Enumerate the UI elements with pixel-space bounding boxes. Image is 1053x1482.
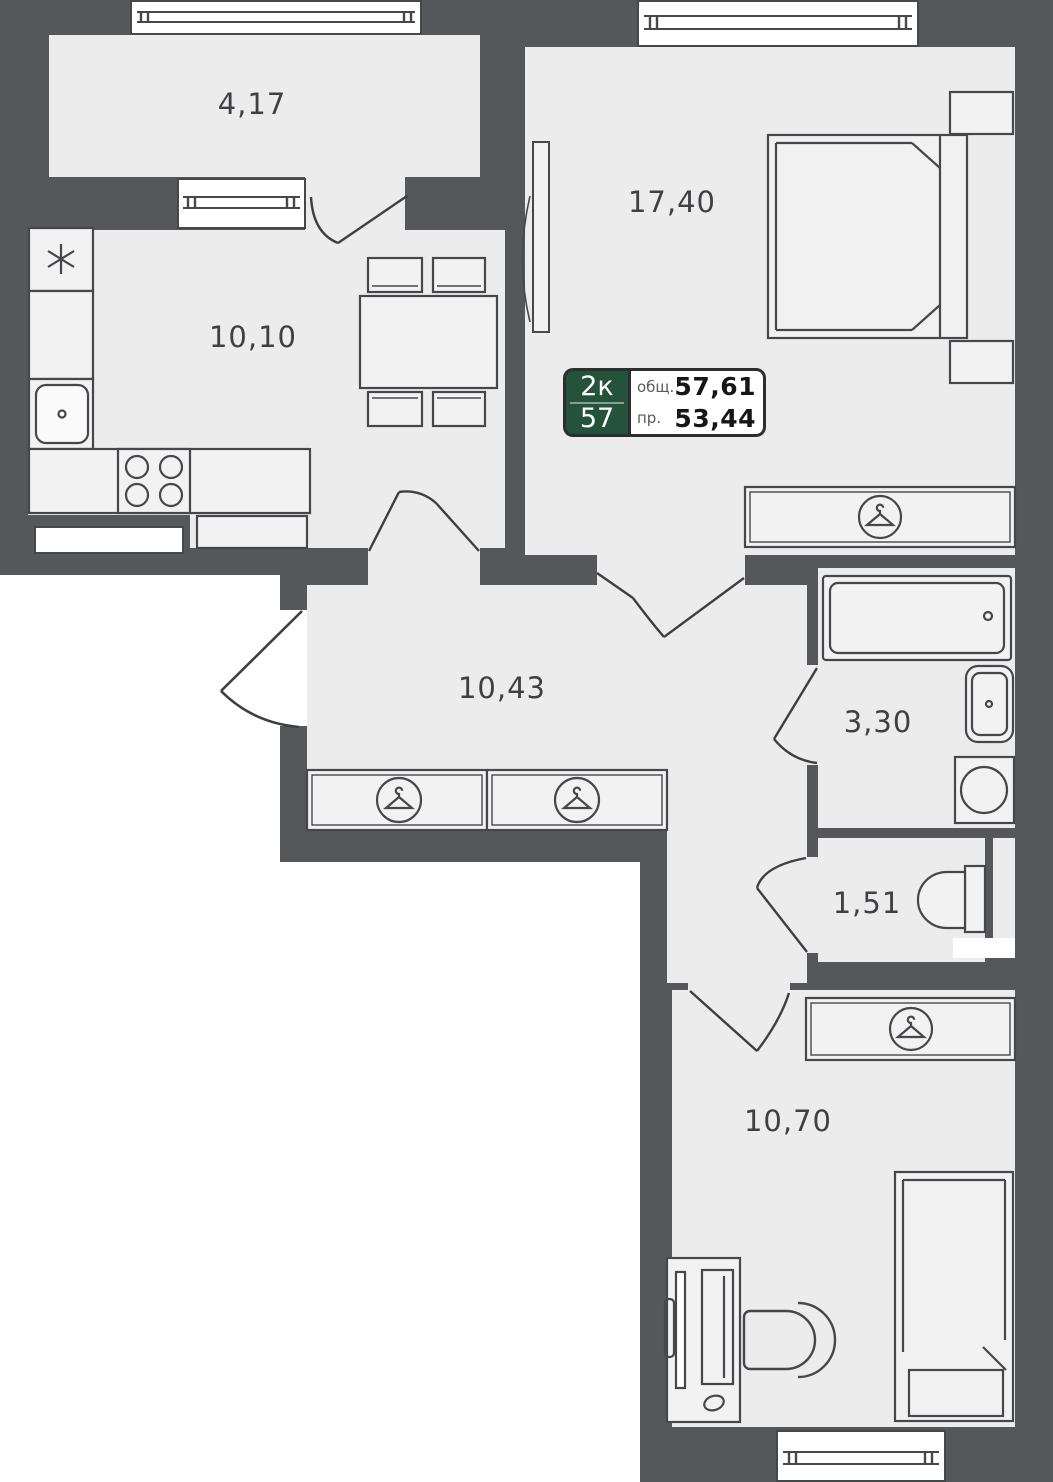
floor-plan: 4,17 10,10 17,40 10,43 3,30 1,51 10,70 2… xyxy=(0,0,1053,1482)
door-gap-balcony xyxy=(305,177,405,230)
door-gap-entry xyxy=(280,610,307,726)
total-area-row: общ. 57,61 xyxy=(631,371,763,403)
apartment-number: 57 xyxy=(566,404,628,435)
room-label-wc: 1,51 xyxy=(833,886,902,920)
room-label-kitchen: 10,10 xyxy=(209,320,297,354)
total-area-label: общ. xyxy=(637,378,674,396)
door-gap-wc xyxy=(806,857,819,953)
living-area-value: 53,44 xyxy=(674,404,756,433)
room-floor-hall xyxy=(307,585,807,830)
door-gap-bathroom xyxy=(806,665,819,765)
living-area-row: пр. 53,44 xyxy=(631,403,763,435)
room-floor-room2 xyxy=(672,990,1015,1427)
room-label-hall: 10,43 xyxy=(458,671,546,705)
room-label-bathroom: 3,30 xyxy=(844,705,913,739)
room-floor-kitchen xyxy=(28,230,505,548)
chip-type-block: 2к 57 xyxy=(563,368,628,437)
door-gap-kitchen xyxy=(368,548,480,585)
wall-kitchen-window-band xyxy=(28,515,190,548)
room-floor-bathroom xyxy=(818,568,1015,828)
total-area-value: 57,61 xyxy=(674,372,756,401)
room-label-balcony: 4,17 xyxy=(218,87,287,121)
room-label-bedroom: 17,40 xyxy=(628,185,716,219)
room-label-room2: 10,70 xyxy=(744,1104,832,1138)
door-gap-bedroom xyxy=(597,555,745,585)
apartment-info-chip: 2к 57 общ. 57,61 пр. 53,44 xyxy=(563,368,766,437)
door-gap-room2 xyxy=(688,955,790,990)
living-area-label: пр. xyxy=(637,409,661,427)
wc-vent-slot xyxy=(953,938,1015,958)
apartment-type: 2к xyxy=(566,371,628,402)
chip-areas-block: общ. 57,61 пр. 53,44 xyxy=(628,368,766,437)
room-floor-bedroom xyxy=(525,47,1015,555)
